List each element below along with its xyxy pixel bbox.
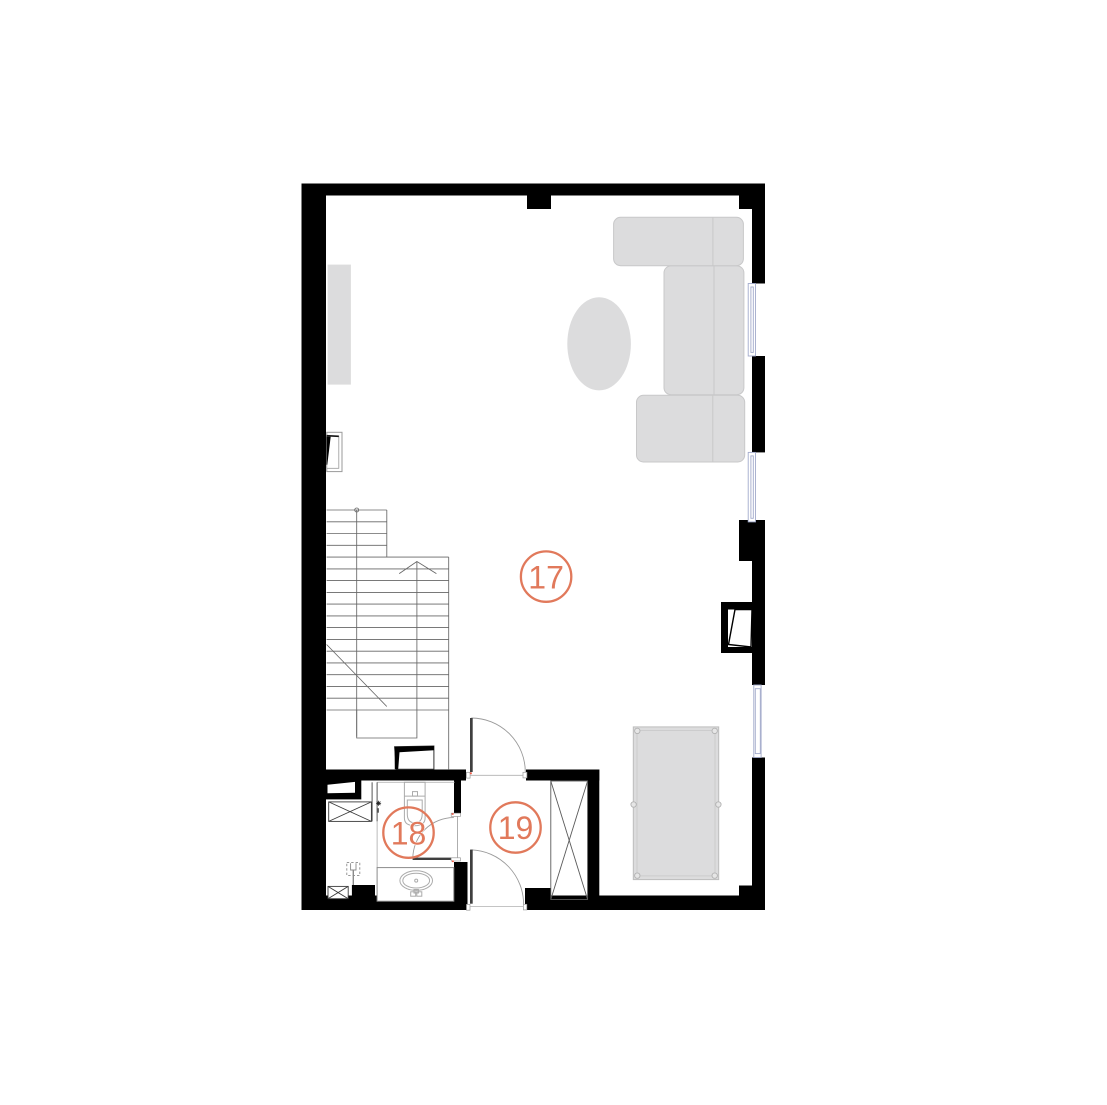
svg-text:18: 18 <box>391 815 427 851</box>
svg-text:19: 19 <box>498 810 534 846</box>
svg-text:17: 17 <box>528 559 564 595</box>
